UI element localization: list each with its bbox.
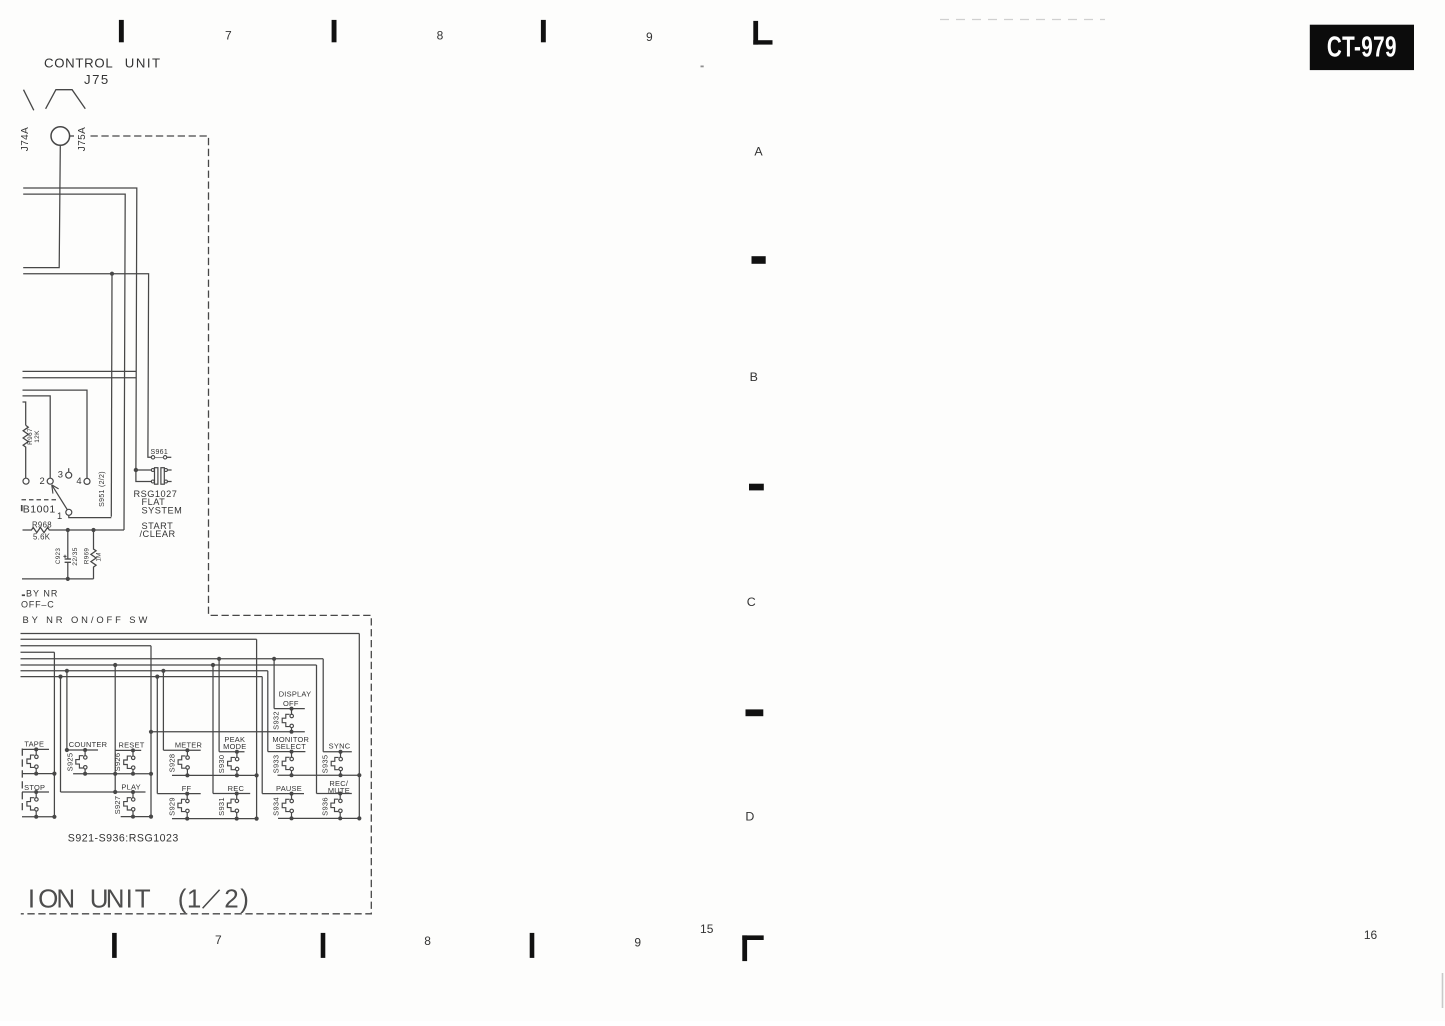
svg-text:BY NR ON/OFF SW: BY NR ON/OFF SW	[23, 614, 151, 625]
svg-text:OFF–C: OFF–C	[21, 599, 55, 609]
svg-text:I: I	[126, 884, 133, 914]
svg-text:12K: 12K	[34, 430, 41, 443]
svg-text:8: 8	[424, 934, 431, 948]
svg-text:9: 9	[646, 30, 653, 44]
svg-text:R968: R968	[32, 521, 52, 530]
svg-text:D: D	[745, 810, 754, 824]
svg-text:B1001: B1001	[23, 503, 56, 515]
svg-text:3: 3	[58, 468, 63, 479]
svg-text:B: B	[750, 370, 758, 384]
svg-text:METER: METER	[175, 740, 203, 749]
svg-text:N: N	[106, 884, 125, 914]
svg-text:1: 1	[187, 884, 201, 914]
svg-text:FF: FF	[182, 784, 192, 793]
svg-text:CONTROL: CONTROL	[44, 56, 113, 71]
svg-text:O: O	[38, 884, 58, 914]
svg-text:5.6K: 5.6K	[33, 533, 51, 542]
svg-text:A: A	[754, 145, 763, 159]
svg-text:J75A: J75A	[77, 127, 88, 151]
svg-text:S935: S935	[321, 755, 330, 774]
svg-text:REC: REC	[228, 784, 245, 793]
svg-text:1: 1	[57, 510, 62, 521]
svg-text:I: I	[28, 884, 35, 914]
svg-text:S931: S931	[217, 797, 226, 816]
svg-text:OFF: OFF	[283, 699, 299, 708]
svg-text:COUNTER: COUNTER	[69, 740, 108, 749]
svg-text:RESET: RESET	[118, 740, 144, 749]
svg-text:2: 2	[40, 475, 45, 486]
svg-text:BY NR: BY NR	[26, 589, 58, 599]
svg-text:STOP: STOP	[24, 783, 45, 792]
svg-text:9: 9	[634, 936, 641, 950]
svg-text:S936: S936	[320, 797, 329, 816]
svg-text:MODE: MODE	[223, 742, 246, 751]
svg-text:16: 16	[1364, 928, 1378, 942]
svg-text:/CLEAR: /CLEAR	[140, 529, 176, 539]
svg-text:PLAY: PLAY	[121, 783, 140, 792]
svg-text:7: 7	[225, 29, 232, 43]
svg-text:S930: S930	[217, 755, 226, 774]
svg-text:S925: S925	[65, 753, 74, 772]
svg-text:4: 4	[76, 475, 81, 486]
svg-text:SYSTEM: SYSTEM	[142, 505, 183, 515]
svg-text:22/35: 22/35	[72, 547, 79, 566]
svg-text:J75: J75	[84, 72, 110, 87]
svg-text:2: 2	[224, 884, 238, 914]
svg-text:C: C	[747, 595, 756, 609]
svg-text:1M: 1M	[95, 552, 102, 561]
svg-text:C923: C923	[55, 548, 62, 564]
svg-text:7: 7	[215, 933, 222, 947]
svg-text:CT-979: CT-979	[1327, 31, 1397, 63]
svg-text:): )	[240, 884, 249, 914]
svg-text:J74A: J74A	[20, 127, 31, 151]
svg-text:S921-S936:RSG1023: S921-S936:RSG1023	[68, 833, 179, 845]
svg-text:MUTE: MUTE	[328, 786, 350, 795]
svg-text:TAPE: TAPE	[24, 739, 44, 748]
svg-text:DISPLAY: DISPLAY	[279, 690, 312, 699]
svg-text:S928: S928	[168, 754, 177, 773]
svg-text:SYNC: SYNC	[329, 742, 351, 751]
svg-text:S933: S933	[272, 755, 281, 774]
svg-text:N: N	[56, 884, 75, 914]
svg-text:S951 (2/2): S951 (2/2)	[99, 471, 106, 507]
svg-text:T: T	[135, 884, 151, 914]
svg-text:S932: S932	[272, 711, 281, 730]
svg-text:R969: R969	[84, 548, 91, 564]
svg-text:UNIT: UNIT	[125, 56, 162, 71]
svg-text:15: 15	[700, 922, 714, 936]
svg-text:S926: S926	[113, 753, 122, 772]
svg-text:(: (	[178, 884, 187, 914]
svg-text:SELECT: SELECT	[276, 742, 307, 751]
svg-text:S929: S929	[168, 797, 177, 816]
svg-text:PAUSE: PAUSE	[276, 784, 302, 793]
svg-text:S927: S927	[113, 796, 122, 815]
svg-text:S934: S934	[272, 797, 281, 816]
svg-text:8: 8	[437, 29, 444, 43]
